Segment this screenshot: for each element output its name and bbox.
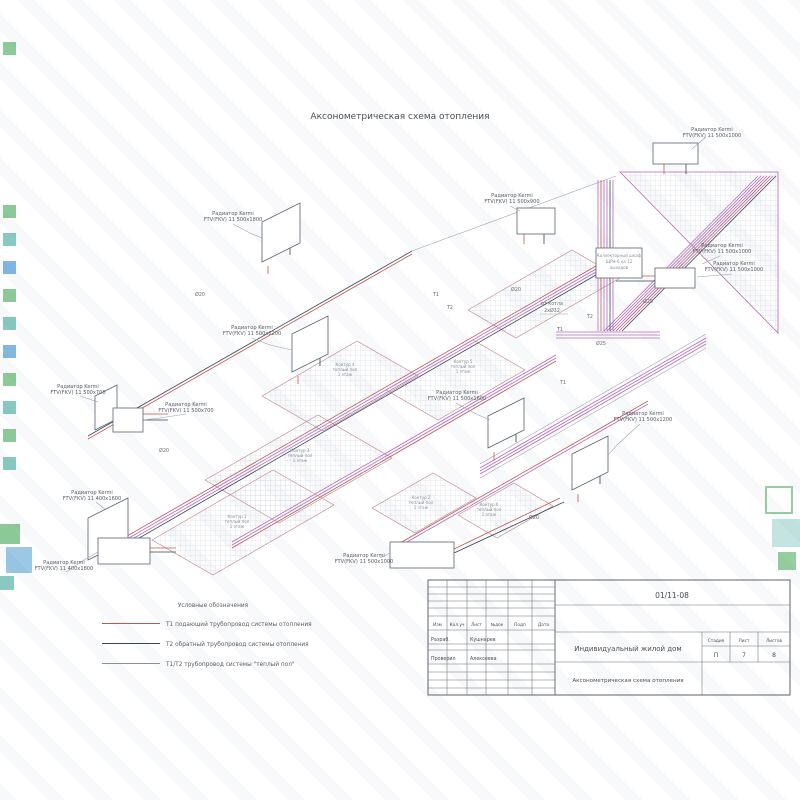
svg-text:FTV(FKV) 11 500x1200: FTV(FKV) 11 500x1200 [223, 331, 282, 337]
radiator-label: Радиатор Kermi FTV(FKV) 11 500x1800 [204, 211, 263, 223]
radiator-label: Радиатор Kermi FTV(FKV) 11 500x700 [158, 402, 213, 414]
radiator-label: Радиатор Kermi FTV(FKV) 11 400x1800 [35, 560, 94, 572]
radiator-label: Радиатор Kermi FTV(FKV) 11 500x1600 [428, 390, 487, 402]
svg-text:FTV(FKV) 11 500x1600: FTV(FKV) 11 500x1600 [428, 396, 487, 402]
svg-text:1 этаж: 1 этаж [338, 372, 353, 377]
watermark-right [766, 487, 800, 570]
t2-label: Т2 [446, 305, 453, 311]
page-title: Аксонометрическая схема отопления [310, 112, 489, 122]
svg-text:1 этаж: 1 этаж [414, 505, 429, 510]
header-data: Дата [538, 622, 549, 628]
t1-label: Т1 [432, 292, 439, 298]
header-ndok: №док [491, 622, 504, 628]
svg-text:FTV(FKV) 11 500x1800: FTV(FKV) 11 500x1800 [204, 217, 263, 223]
project-name: Индивидуальный жилой дом [574, 645, 681, 653]
diameter-label: Ø20 [195, 291, 205, 298]
radiator-label: Радиатор Kermi FTV(FKV) 11 500x1000 [335, 553, 394, 565]
role-developer: Разраб. [431, 637, 450, 643]
radiator-label: Радиатор Kermi FTV(FKV) 11 500x700 [50, 384, 105, 396]
legend: Условные обозначения Т1 подающий трубопр… [102, 603, 312, 668]
svg-text:от котла: от котла [541, 302, 563, 307]
svg-text:Т1 подающий трубопровод систем: Т1 подающий трубопровод системы отоплени… [165, 621, 312, 628]
diameter-label: Ø20 [159, 447, 169, 454]
svg-text:Т2 обратный трубопровод систем: Т2 обратный трубопровод системы отоплени… [165, 641, 309, 648]
sheets-value: 8 [772, 652, 776, 659]
drawing-canvas: Аксонометрическая схема отопления [0, 0, 800, 800]
sheet-value: 7 [742, 652, 746, 659]
svg-text:FTV(FKV) 11 400x1600: FTV(FKV) 11 400x1600 [63, 496, 122, 502]
diameter-label: Ø25 [596, 340, 606, 347]
header-podp: Подп [514, 622, 526, 628]
radiator-label: Радиатор Kermi FTV(FKV) 11 500x900 [484, 193, 539, 205]
radiator-label: Радиатор Kermi FTV(FKV) 11 500x1000 [693, 243, 752, 255]
t1-label: Т1 [556, 327, 563, 333]
stage-label: Стадия [708, 638, 725, 644]
svg-text:FTV(FKV) 11 500x1000: FTV(FKV) 11 500x1000 [335, 559, 394, 565]
radiator-label: Радиатор Kermi FTV(FKV) 11 500x1200 [223, 325, 282, 337]
collector-line3: выходов [610, 265, 629, 270]
svg-text:FTV(FKV) 11 500x1000: FTV(FKV) 11 500x1000 [705, 267, 764, 273]
collector-line2: ЩРН-6 на 12 [606, 259, 633, 264]
svg-text:FTV(FKV) 11 500x700: FTV(FKV) 11 500x700 [50, 390, 105, 396]
sheet: { "page": { "title": "Аксонометрическая … [0, 0, 800, 800]
doc-number: 01/11-08 [655, 591, 689, 600]
name-checker: Алексеева [470, 656, 497, 662]
name-developer: Кушнарев [470, 637, 496, 643]
watermark-left [0, 42, 32, 590]
radiator-label: Радиатор Kermi FTV(FKV) 11 500x1000 [705, 261, 764, 273]
header-izm: Изм [433, 622, 442, 628]
svg-text:FTV(FKV) 11 500x900: FTV(FKV) 11 500x900 [484, 199, 539, 205]
header-koluch: Кол.уч [450, 622, 465, 628]
legend-title: Условные обозначения [178, 603, 248, 609]
svg-text:2xØ32: 2xØ32 [544, 307, 560, 314]
t2-label: Т2 [586, 314, 593, 320]
t1-label: Т1 [559, 380, 566, 386]
svg-text:1 этаж: 1 этаж [482, 512, 497, 517]
diameter-label: Ø20 [529, 514, 539, 521]
drawing-name: Аксонометрическая схема отопления [572, 678, 683, 684]
radiator-label: Радиатор Kermi FTV(FKV) 11 500x1200 [614, 411, 673, 423]
legend-item: Т2 обратный трубопровод системы отоплени… [102, 641, 309, 648]
svg-text:FTV(FKV) 11 500x1000: FTV(FKV) 11 500x1000 [693, 249, 752, 255]
svg-text:FTV(FKV) 11 400x1800: FTV(FKV) 11 400x1800 [35, 566, 94, 572]
diameter-label: Ø20 [643, 298, 653, 305]
radiator-label: Радиатор Kermi FTV(FKV) 11 400x1600 [63, 490, 122, 502]
svg-text:Т1/Т2 трубопровод системы "теп: Т1/Т2 трубопровод системы "теплый пол" [165, 661, 295, 668]
sheets-label: Листов [766, 638, 783, 644]
diameter-label: Ø20 [511, 286, 521, 293]
legend-item: Т1 подающий трубопровод системы отоплени… [102, 621, 312, 628]
sheet-label: Лист [739, 638, 750, 644]
legend-item: Т1/Т2 трубопровод системы "теплый пол" [102, 661, 295, 668]
collector-cabinet: Коллекторный шкаф ЩРН-6 на 12 выходов [596, 248, 642, 278]
collector-line1: Коллекторный шкаф [597, 253, 642, 258]
role-checker: Проверил [431, 656, 456, 662]
svg-text:FTV(FKV) 11 500x1200: FTV(FKV) 11 500x1200 [614, 417, 673, 423]
stage-value: П [714, 652, 719, 659]
svg-text:1 этаж: 1 этаж [230, 524, 245, 529]
svg-text:FTV(FKV) 11 500x700: FTV(FKV) 11 500x700 [158, 408, 213, 414]
svg-text:1 этаж: 1 этаж [456, 369, 471, 374]
title-block: 01/11-08 Изм Кол.уч Лист №док Подп Дата … [428, 580, 790, 695]
svg-text:FTV(FKV) 11 500x1000: FTV(FKV) 11 500x1000 [683, 133, 742, 139]
radiator-label: Радиатор Kermi FTV(FKV) 11 500x1000 [683, 127, 742, 139]
svg-text:1 этаж: 1 этаж [293, 458, 308, 463]
header-list: Лист [471, 622, 482, 628]
